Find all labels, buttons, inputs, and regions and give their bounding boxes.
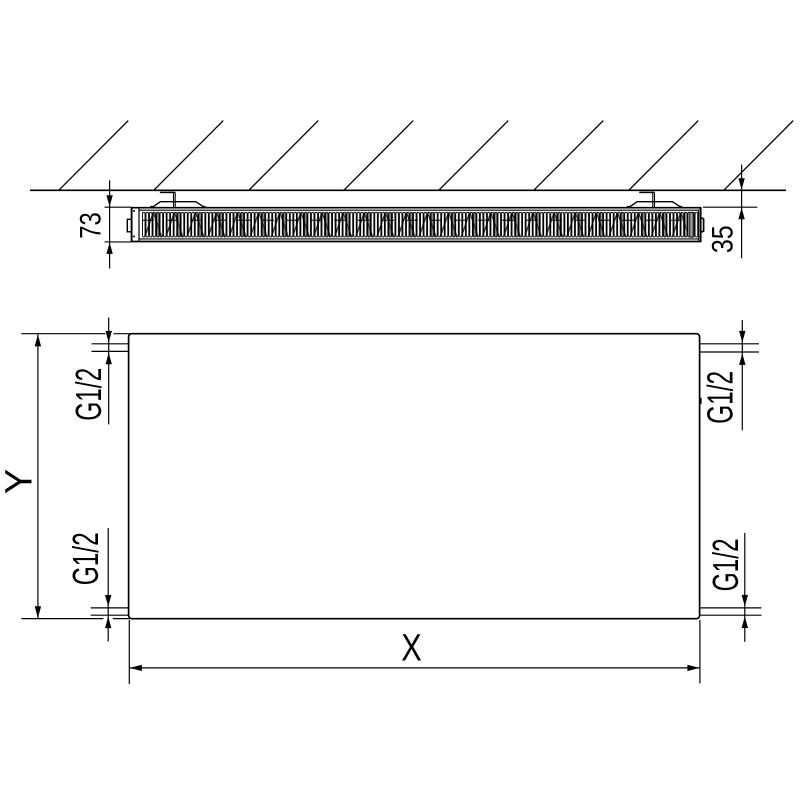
svg-text:Y: Y (0, 469, 40, 494)
svg-text:G1/2: G1/2 (68, 368, 109, 421)
svg-text:73: 73 (75, 212, 108, 239)
svg-text:X: X (401, 628, 422, 670)
svg-text:G1/2: G1/2 (65, 532, 106, 585)
svg-text:G1/2: G1/2 (700, 371, 741, 424)
svg-text:G1/2: G1/2 (705, 538, 746, 591)
svg-text:35: 35 (706, 225, 739, 253)
